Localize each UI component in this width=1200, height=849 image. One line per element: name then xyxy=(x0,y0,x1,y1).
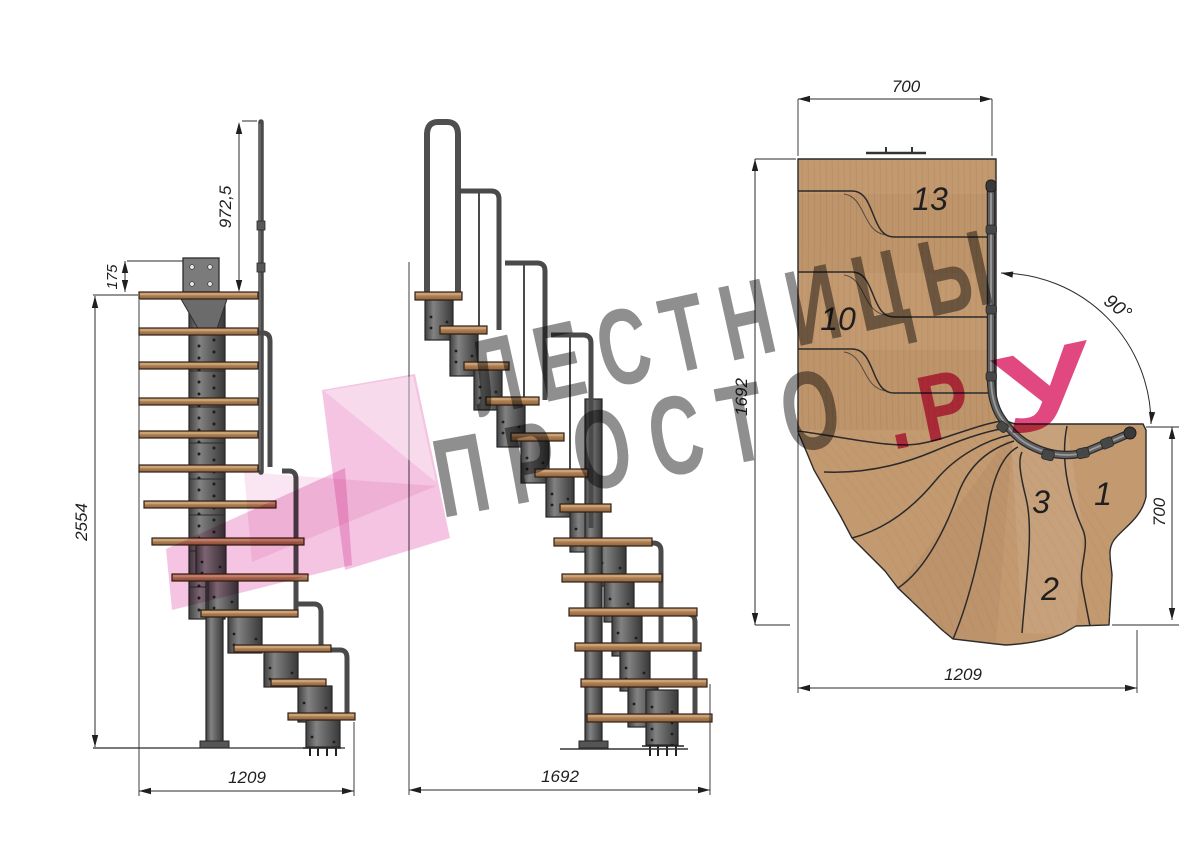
svg-text:700: 700 xyxy=(1150,497,1169,526)
svg-text:1209: 1209 xyxy=(228,768,266,787)
svg-text:2: 2 xyxy=(1040,571,1059,607)
svg-text:3: 3 xyxy=(1032,484,1050,520)
svg-text:1209: 1209 xyxy=(944,665,982,684)
svg-text:1692: 1692 xyxy=(541,767,579,786)
svg-text:175: 175 xyxy=(104,264,121,290)
svg-text:972,5: 972,5 xyxy=(216,185,235,228)
svg-text:2554: 2554 xyxy=(72,503,91,542)
svg-text:13: 13 xyxy=(912,181,948,217)
svg-text:700: 700 xyxy=(892,77,921,96)
svg-text:1: 1 xyxy=(1094,476,1112,512)
